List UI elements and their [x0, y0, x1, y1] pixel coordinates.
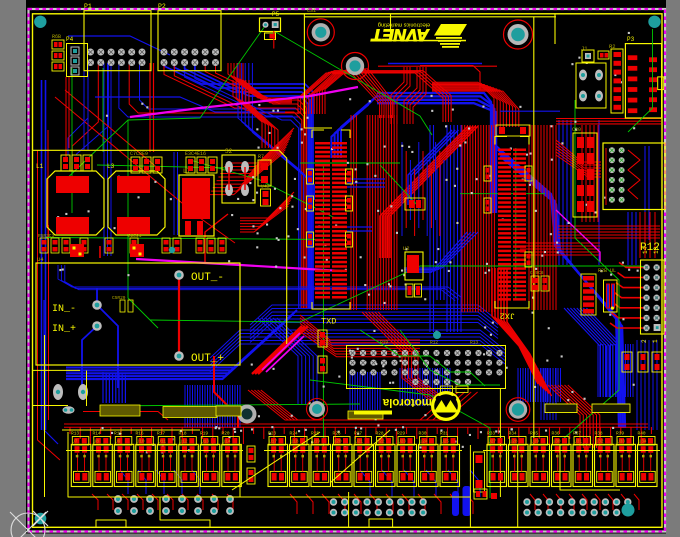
- svg-text:P1: P1: [84, 3, 92, 10]
- svg-text:motorola: motorola: [382, 396, 432, 408]
- svg-text:U29: U29: [531, 439, 539, 445]
- svg-text:1: 1: [652, 339, 659, 343]
- svg-text:U7: U7: [72, 439, 78, 445]
- svg-text:R19: R19: [200, 431, 208, 437]
- svg-text:U23: U23: [398, 439, 406, 445]
- svg-text:J1: J1: [581, 45, 588, 52]
- svg-text:P5: P5: [272, 11, 280, 18]
- svg-text:IN_-: IN_-: [52, 304, 76, 315]
- svg-text:R26: R26: [333, 431, 341, 437]
- svg-text:R28: R28: [376, 431, 384, 437]
- svg-text:R29: R29: [397, 431, 405, 437]
- svg-text:R13: R13: [470, 340, 478, 346]
- svg-text:U27: U27: [488, 439, 496, 445]
- svg-text:R39: R39: [616, 431, 624, 437]
- svg-text:electronics marketing: electronics marketing: [378, 21, 430, 27]
- svg-text:U11: U11: [158, 439, 166, 445]
- svg-text:R19: R19: [380, 340, 388, 346]
- svg-text:2: 2: [641, 339, 648, 343]
- svg-text:R36: R36: [552, 431, 560, 437]
- svg-text:U30: U30: [553, 439, 561, 445]
- svg-text:U22: U22: [377, 439, 385, 445]
- svg-text:R18: R18: [179, 431, 187, 437]
- svg-text:L3: L3: [107, 163, 115, 170]
- svg-text:U20: U20: [334, 439, 342, 445]
- svg-text:R40: R40: [638, 431, 646, 437]
- svg-text:C31: C31: [307, 8, 316, 14]
- svg-text:U10: U10: [137, 439, 145, 445]
- svg-text:R38: R38: [595, 431, 603, 437]
- svg-text:C2E21: C2E21: [128, 233, 142, 239]
- svg-text:R34: R34: [509, 431, 517, 437]
- svg-text:R12: R12: [430, 340, 438, 346]
- svg-text:U32: U32: [596, 439, 604, 445]
- svg-text:U33: U33: [617, 439, 625, 445]
- svg-text:R33: R33: [487, 431, 495, 437]
- svg-text:U17: U17: [269, 439, 277, 445]
- svg-text:U4: U4: [37, 256, 44, 263]
- svg-text:R7: R7: [258, 154, 264, 160]
- svg-text:U28: U28: [510, 439, 518, 445]
- svg-text:R31: R31: [440, 431, 448, 437]
- svg-text:U31: U31: [574, 439, 582, 445]
- svg-text:E3C4E16: E3C4E16: [185, 151, 206, 157]
- svg-text:R6B: R6B: [52, 34, 61, 40]
- svg-text:U12: U12: [180, 439, 188, 445]
- svg-text:S2: S2: [225, 148, 233, 155]
- svg-text:R23: R23: [268, 431, 276, 437]
- svg-text:U9: U9: [115, 439, 121, 445]
- svg-text:R2: R2: [609, 43, 616, 50]
- svg-text:R15: R15: [114, 431, 122, 437]
- svg-text:OUT_+: OUT_+: [191, 353, 224, 365]
- svg-text:IN_+: IN_+: [52, 324, 76, 335]
- svg-text:JX2: JX2: [500, 311, 515, 321]
- svg-text:R24: R24: [290, 431, 298, 437]
- svg-text:R25: R25: [311, 431, 319, 437]
- svg-text:P3: P3: [627, 36, 635, 43]
- svg-text:U4B: U4B: [261, 184, 269, 190]
- svg-text:R35: R35: [530, 431, 538, 437]
- svg-text:R30: R30: [419, 431, 427, 437]
- svg-text:14: 14: [642, 246, 649, 254]
- svg-text:U25: U25: [441, 439, 449, 445]
- svg-text:P4: P4: [66, 36, 74, 43]
- svg-text:R27: R27: [354, 431, 362, 437]
- svg-text:U13: U13: [201, 439, 209, 445]
- svg-text:U18: U18: [291, 439, 299, 445]
- svg-text:13: 13: [653, 246, 660, 254]
- svg-text:R5R3C3: R5R3C3: [38, 233, 55, 239]
- svg-text:U19: U19: [312, 439, 320, 445]
- svg-text:R13: R13: [71, 431, 79, 437]
- svg-text:TXD: TXD: [321, 317, 336, 327]
- svg-text:R37: R37: [573, 431, 581, 437]
- svg-text:U21: U21: [355, 439, 363, 445]
- svg-text:C20: C20: [572, 127, 581, 133]
- svg-text:U34: U34: [639, 439, 647, 445]
- svg-text:C5R29: C5R29: [112, 295, 126, 301]
- svg-text:U8: U8: [94, 439, 100, 445]
- svg-text:R20: R20: [222, 431, 230, 437]
- svg-text:R14: R14: [93, 431, 101, 437]
- svg-text:U14: U14: [223, 439, 231, 445]
- svg-text:C19C8: C19C8: [530, 270, 544, 276]
- svg-text:L1: L1: [36, 163, 44, 170]
- svg-text:U2: U2: [403, 245, 410, 252]
- svg-text:OUT_-: OUT_-: [191, 272, 224, 284]
- svg-text:U24: U24: [420, 439, 428, 445]
- svg-text:R17: R17: [157, 431, 165, 437]
- svg-text:C7C8E9: C7C8E9: [130, 151, 148, 157]
- svg-text:AVNET: AVNET: [370, 26, 430, 45]
- svg-text:R2B UL: R2B UL: [598, 268, 616, 274]
- svg-text:R16: R16: [136, 431, 144, 437]
- svg-text:P2: P2: [158, 3, 166, 10]
